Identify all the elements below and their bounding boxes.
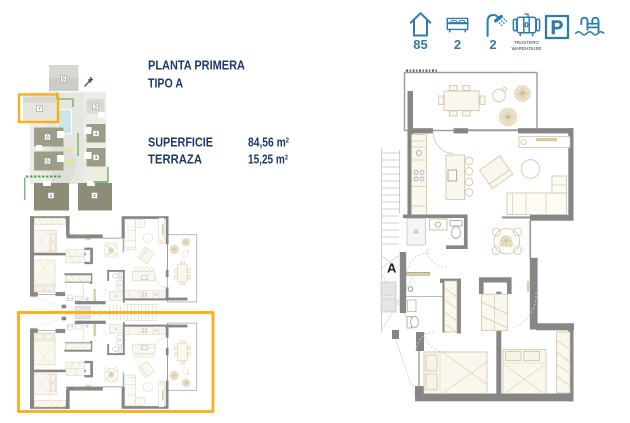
- svg-text:15,25 m2: 15,25 m2: [248, 153, 288, 167]
- svg-text:A: A: [387, 261, 397, 276]
- svg-text:P: P: [551, 18, 564, 39]
- svg-text:84,56 m2: 84,56 m2: [248, 136, 289, 150]
- svg-text:TRASTERO: TRASTERO: [514, 40, 539, 45]
- svg-text:TIPO A: TIPO A: [148, 77, 183, 91]
- svg-text:2: 2: [489, 37, 496, 52]
- svg-text:TERRAZA: TERRAZA: [148, 153, 202, 167]
- svg-text:2: 2: [454, 37, 461, 52]
- svg-text:WAREHOUSE: WAREHOUSE: [512, 46, 542, 51]
- svg-text:85: 85: [413, 37, 427, 52]
- svg-text:PLANTA PRIMERA: PLANTA PRIMERA: [148, 59, 245, 73]
- svg-text:SUPERFICIE: SUPERFICIE: [148, 136, 213, 150]
